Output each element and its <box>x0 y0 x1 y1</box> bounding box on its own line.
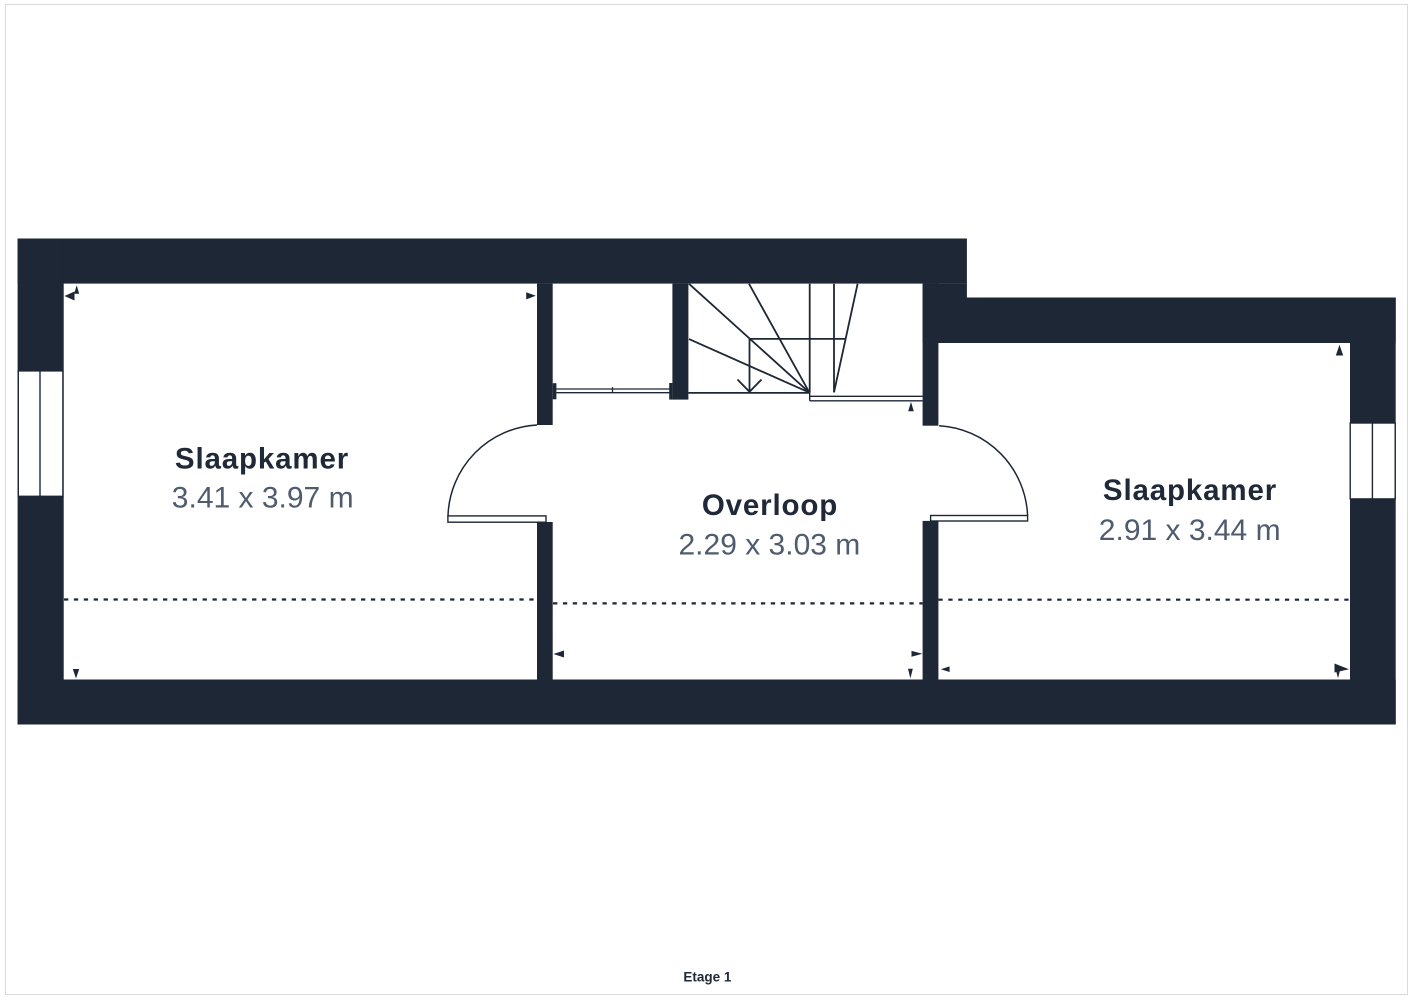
svg-text:2.91 x 3.44 m: 2.91 x 3.44 m <box>1099 514 1281 547</box>
svg-text:3.41 x 3.97 m: 3.41 x 3.97 m <box>172 481 354 514</box>
svg-text:Etage 1: Etage 1 <box>683 969 732 984</box>
svg-text:Slaapkamer: Slaapkamer <box>1103 474 1277 507</box>
svg-text:2.29 x 3.03 m: 2.29 x 3.03 m <box>679 529 861 562</box>
svg-text:Overloop: Overloop <box>702 489 838 522</box>
svg-text:Slaapkamer: Slaapkamer <box>175 442 349 475</box>
